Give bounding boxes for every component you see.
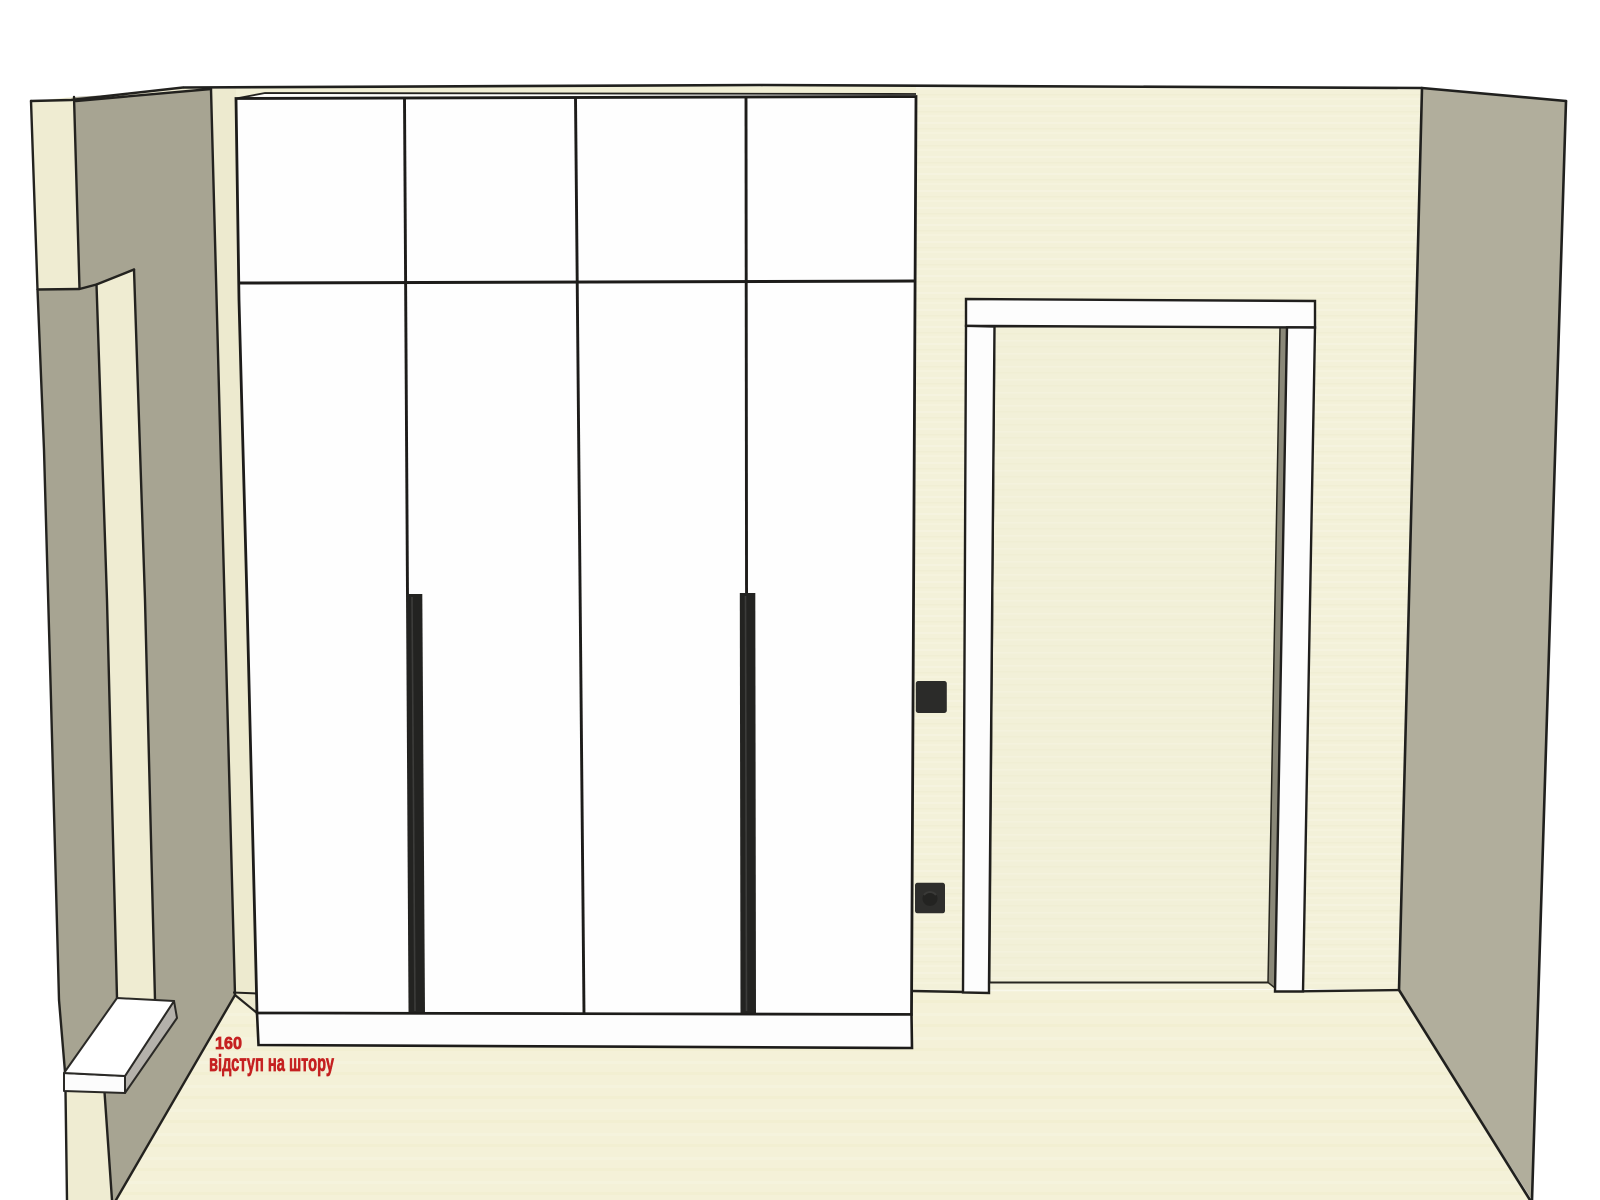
svg-text:відступ на штору: відступ на штору — [209, 1050, 334, 1076]
